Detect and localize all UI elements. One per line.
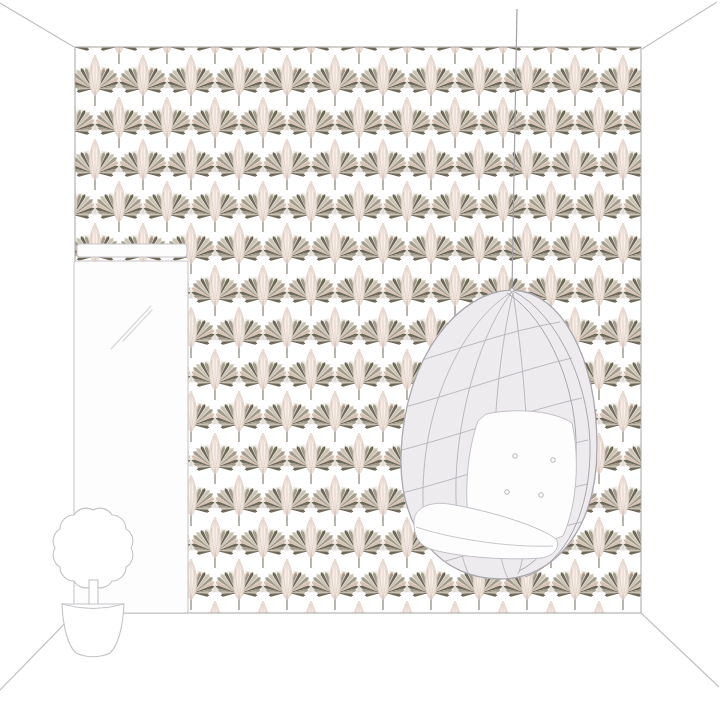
room-mockup	[0, 0, 720, 720]
scene-canvas	[0, 0, 720, 720]
plant-pot	[62, 604, 124, 657]
mirror-top-bar	[77, 244, 187, 257]
cord-attachment	[510, 288, 514, 292]
plant-foliage	[53, 508, 133, 588]
floor-corner-right	[641, 613, 719, 687]
ceiling-corner-right	[642, 2, 717, 49]
ceiling-corner-left	[0, 3, 74, 47]
